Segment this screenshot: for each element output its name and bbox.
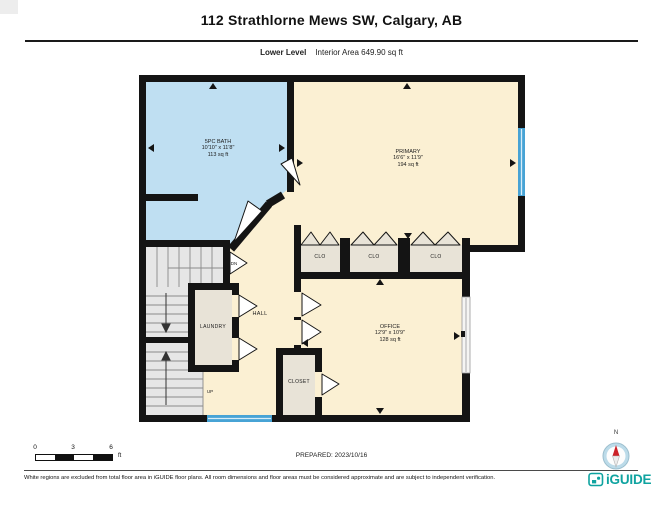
level-subtitle: Lower LevelInterior Area 649.90 sq ft	[0, 48, 663, 57]
room-label-closet: CLOSET	[277, 379, 321, 385]
footer-disclaimer: White regions are excluded from total fl…	[24, 475, 564, 481]
room-area: 194 sq ft	[363, 162, 453, 168]
interior-area-label: Interior Area 649.90 sq ft	[315, 48, 403, 57]
room-area: 113 sq ft	[173, 152, 263, 158]
iguide-logo-text: iGUIDE	[606, 472, 651, 487]
room-area: 128 sq ft	[345, 337, 435, 343]
stairs-down-label: DN	[226, 261, 242, 266]
window-primary	[518, 128, 525, 196]
scale-tick-3: 3	[71, 444, 75, 451]
iguide-logo: iGUIDE	[588, 471, 651, 487]
room-label-clo-2: CLO	[354, 254, 394, 260]
floor-plan	[130, 65, 530, 425]
room-label-office: OFFICE 12'9" x 10'9" 128 sq ft	[345, 324, 435, 343]
window-hall	[207, 415, 272, 422]
room-label-hall: HALL	[240, 311, 280, 317]
compass-north-label: N	[597, 430, 635, 436]
room-label-primary: PRIMARY 16'6" x 11'9" 194 sq ft	[363, 149, 453, 168]
room-label-clo-3: CLO	[416, 254, 456, 260]
room-label-bath: 5PC BATH 10'10" x 11'8" 113 sq ft	[173, 139, 263, 158]
iguide-logo-icon	[588, 472, 604, 487]
floorplan-page: { "header": { "title": "112 Strathlorne …	[0, 0, 663, 512]
page-title: 112 Strathlorne Mews SW, Calgary, AB	[0, 12, 663, 28]
room-label-clo-1: CLO	[300, 254, 340, 260]
prepared-date-label: PREPARED: 2023/10/16	[0, 452, 663, 459]
level-label: Lower Level	[260, 48, 306, 57]
scale-tick-6: 6	[109, 444, 113, 451]
room-label-laundry: LAUNDRY	[183, 324, 243, 330]
window-office	[461, 297, 470, 373]
scale-tick-0: 0	[33, 444, 37, 451]
footer-divider	[24, 470, 638, 471]
floor-plan-drawing	[130, 65, 530, 425]
stairs-up-label: UP	[202, 389, 218, 394]
header-divider	[25, 40, 638, 42]
